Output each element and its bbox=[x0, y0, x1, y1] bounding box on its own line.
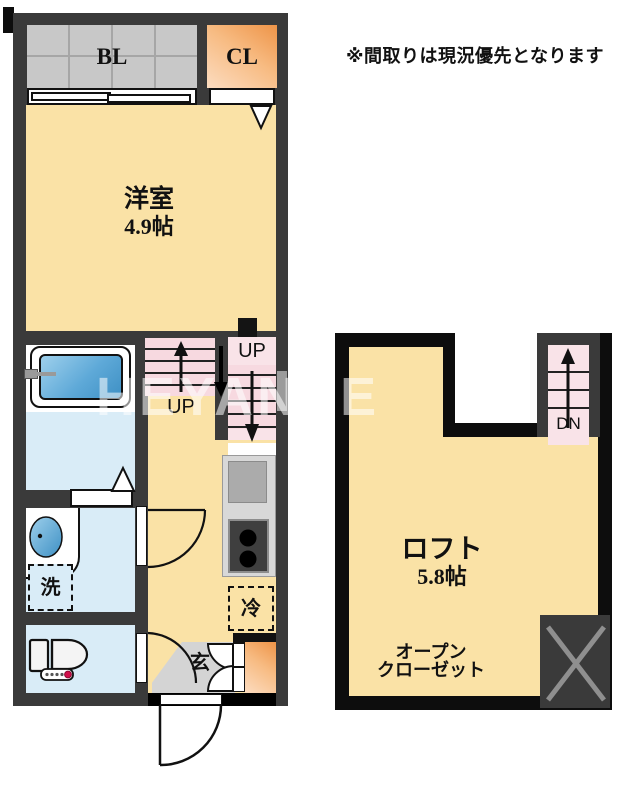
entrance-opening bbox=[160, 694, 222, 705]
shoe-closet-door-frame bbox=[233, 643, 245, 667]
stairs-up-label-2: UP bbox=[230, 341, 274, 361]
window-pane-right bbox=[107, 94, 191, 103]
window-pane-left bbox=[31, 92, 111, 101]
closet-cl-floor: CL bbox=[207, 25, 277, 88]
loft-stair-lines bbox=[548, 355, 589, 413]
loft-room-size: 5.8帖 bbox=[383, 566, 501, 588]
entrance-door-arc bbox=[160, 705, 221, 765]
entrance-label: 玄 bbox=[180, 650, 220, 676]
washer-space: 洗 bbox=[28, 564, 73, 611]
counter-gap bbox=[228, 443, 276, 455]
bath-faucet-icon bbox=[24, 369, 38, 379]
bath-door-opening bbox=[70, 489, 133, 507]
western-room-label: 洋室 bbox=[76, 187, 222, 212]
shoe-closet-door-frame2 bbox=[233, 667, 245, 692]
washroom-door-opening bbox=[136, 506, 147, 566]
fridge-space: 冷 bbox=[228, 586, 274, 631]
wall-stub-stair bbox=[238, 318, 257, 337]
open-closet-line1: オープン bbox=[366, 643, 496, 661]
closet-cl-label: CL bbox=[226, 45, 258, 68]
open-closet-line2: クローゼット bbox=[366, 661, 496, 679]
dead-space bbox=[540, 615, 610, 708]
floor-plan: BL CL 洗 bbox=[0, 0, 620, 790]
wall-room-bath bbox=[13, 331, 145, 345]
balcony-floor: BL bbox=[27, 25, 197, 88]
closet-opening bbox=[209, 88, 275, 105]
kitchen-sink bbox=[228, 461, 267, 503]
loft-notch-void bbox=[455, 333, 540, 423]
disclaimer-note: ※間取りは現況優先となります bbox=[346, 47, 616, 67]
fridge-label: 冷 bbox=[241, 599, 261, 619]
loft-room-label: ロフト bbox=[383, 536, 501, 563]
watermark-text: HEYANSE bbox=[96, 366, 380, 428]
sliding-window bbox=[27, 88, 197, 105]
western-room-size: 4.9帖 bbox=[76, 216, 222, 238]
loft-dn-label: DN bbox=[548, 413, 589, 433]
toilet-door-opening bbox=[136, 633, 147, 683]
open-closet-label-block: オープン クローゼット bbox=[366, 643, 496, 679]
bath-faucet-stem bbox=[37, 372, 56, 376]
stairs-upper-landing bbox=[228, 429, 276, 440]
balcony-label: BL bbox=[97, 45, 128, 68]
wall-washroom-toilet bbox=[13, 612, 148, 625]
kitchen-stove bbox=[228, 519, 269, 573]
washer-label: 洗 bbox=[41, 578, 61, 598]
shoe-closet bbox=[245, 642, 276, 693]
western-room-label-block: 洋室 4.9帖 bbox=[76, 187, 222, 238]
loft-label-block: ロフト 5.8帖 bbox=[383, 536, 501, 588]
toilet-room-floor bbox=[26, 625, 135, 693]
